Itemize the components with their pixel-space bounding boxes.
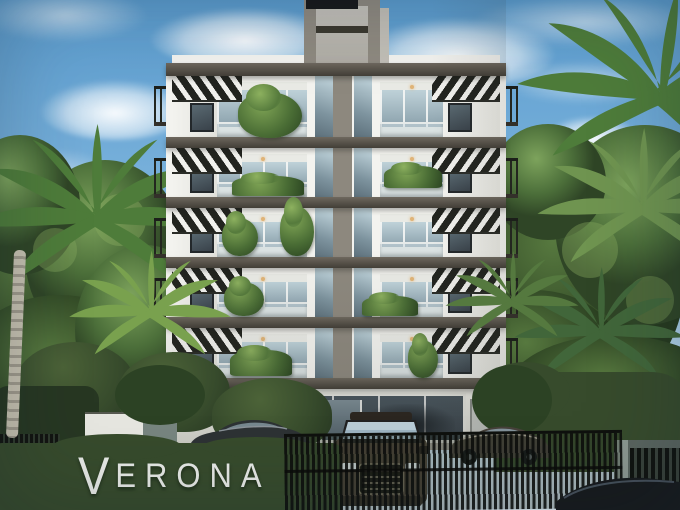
sign-text: ERONA <box>115 456 270 495</box>
architectural-render-scene: VERONA <box>0 0 680 510</box>
sign-initial-letter: V <box>78 446 115 505</box>
verona-sign: VERONA <box>78 449 271 502</box>
